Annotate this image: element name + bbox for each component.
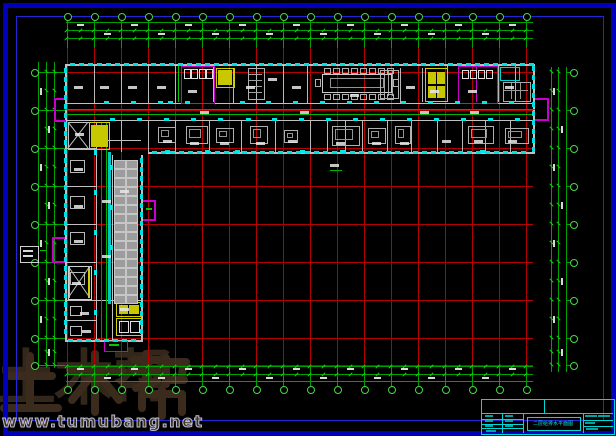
title-block-text-mark: [586, 428, 598, 430]
title-block-line: [481, 413, 613, 414]
watermark-url-text: www.tumubang.net: [2, 412, 204, 431]
title-block-line: [583, 413, 584, 433]
title-block-text-mark: [486, 430, 496, 432]
title-block-text-mark: [485, 425, 493, 427]
title-block-text-mark: [585, 422, 595, 424]
title-block-line: [523, 413, 524, 433]
title-block-line: [502, 413, 503, 433]
title-block-line: [544, 399, 545, 413]
drawing-title-box: [527, 417, 581, 431]
title-block-text-mark: [585, 415, 597, 417]
title-block-text-mark: [505, 415, 513, 417]
title-block-layer: 二层给排水平面图: [0, 0, 616, 436]
title-block-line: [481, 428, 523, 429]
title-block-text-mark: [485, 415, 493, 417]
title-block-text-mark: [505, 420, 513, 422]
title-block-line: [583, 426, 613, 427]
title-block-text-mark: [598, 415, 610, 417]
title-block-text-mark: [505, 425, 513, 427]
cad-drawing-sheet: 土木帮 二层给排水平面图 www.tumubang.net: [0, 0, 616, 436]
title-block-line: [583, 420, 613, 421]
title-block-text-mark: [485, 420, 493, 422]
